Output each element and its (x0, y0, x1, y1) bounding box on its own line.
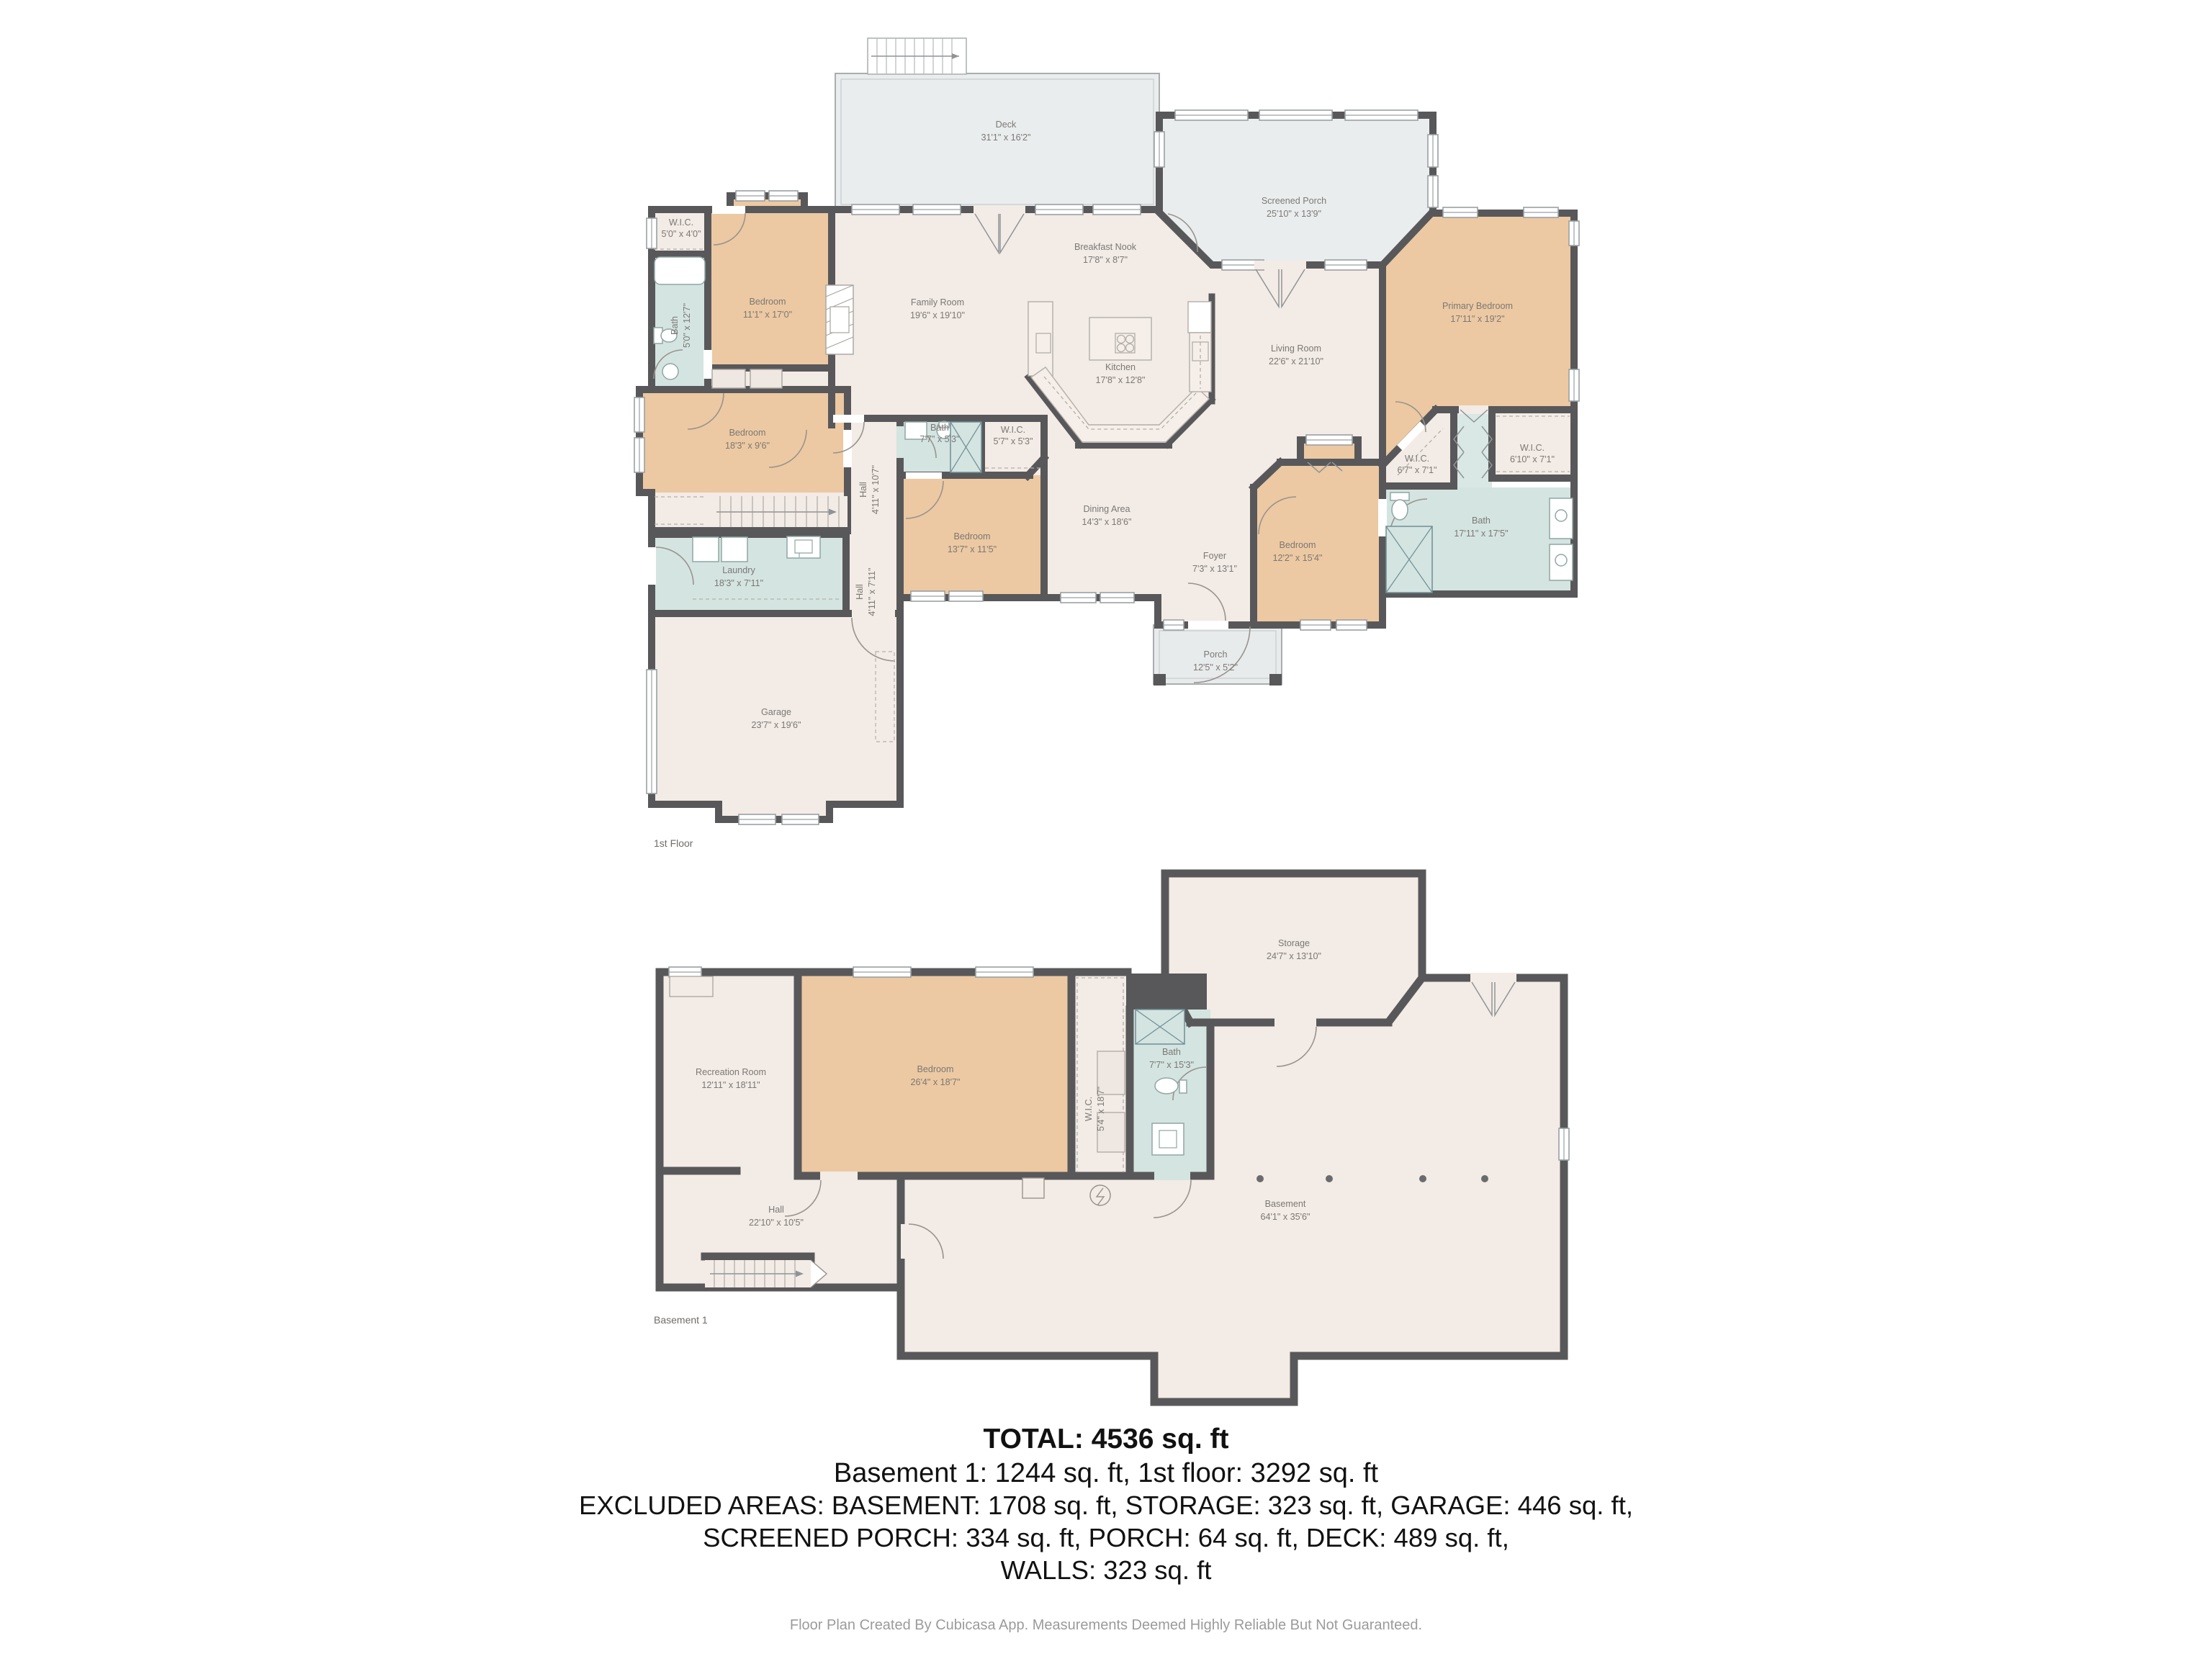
svg-text:25'10" x 13'9": 25'10" x 13'9" (1267, 209, 1321, 219)
svg-text:Kitchen: Kitchen (1105, 362, 1136, 372)
svg-text:Primary Bedroom: Primary Bedroom (1442, 301, 1513, 311)
svg-text:22'6" x 21'10": 22'6" x 21'10" (1269, 356, 1323, 367)
svg-text:Foyer: Foyer (1203, 551, 1226, 561)
svg-text:17'11" x 19'2": 17'11" x 19'2" (1450, 314, 1504, 324)
svg-text:Hall: Hall (858, 482, 868, 498)
svg-text:7'7" x 5'3": 7'7" x 5'3" (920, 434, 959, 444)
svg-text:EXCLUDED AREAS: BASEMENT: 1708: EXCLUDED AREAS: BASEMENT: 1708 sq. ft, S… (579, 1491, 1633, 1520)
svg-text:5'0" x 12'7": 5'0" x 12'7" (682, 303, 692, 348)
svg-text:Bedroom: Bedroom (729, 428, 765, 438)
svg-text:12'5" x 5'2": 12'5" x 5'2" (1193, 662, 1238, 673)
svg-text:5'0" x 4'0": 5'0" x 4'0" (661, 229, 701, 239)
svg-text:12'2" x 15'4": 12'2" x 15'4" (1272, 553, 1322, 563)
svg-text:Bedroom: Bedroom (953, 531, 990, 541)
svg-text:5'7" x 5'3": 5'7" x 5'3" (993, 436, 1033, 446)
svg-text:WALLS: 323 sq. ft: WALLS: 323 sq. ft (1001, 1555, 1212, 1585)
svg-text:Dining Area: Dining Area (1083, 504, 1130, 514)
svg-text:6'10" x 7'1": 6'10" x 7'1" (1510, 454, 1555, 464)
svg-text:TOTAL: 4536 sq. ft: TOTAL: 4536 sq. ft (984, 1424, 1229, 1455)
svg-text:Basement 1: 1244 sq. ft, 1st f: Basement 1: 1244 sq. ft, 1st floor: 3292… (834, 1458, 1379, 1488)
svg-text:17'8" x 8'7": 17'8" x 8'7" (1083, 255, 1128, 265)
svg-text:Hall: Hall (768, 1205, 784, 1215)
svg-text:Bath: Bath (1162, 1047, 1181, 1057)
svg-text:Living Room: Living Room (1271, 343, 1321, 354)
svg-text:19'6" x 19'10": 19'6" x 19'10" (910, 310, 965, 320)
svg-text:64'1" x 35'6": 64'1" x 35'6" (1260, 1212, 1310, 1222)
svg-text:Bedroom: Bedroom (749, 297, 786, 307)
svg-text:W.I.C.: W.I.C. (669, 217, 693, 228)
svg-text:4'11" x 10'7": 4'11" x 10'7" (871, 465, 881, 514)
svg-text:13'7" x 11'5": 13'7" x 11'5" (948, 544, 997, 554)
svg-text:Screened Porch: Screened Porch (1262, 196, 1326, 206)
svg-text:14'3" x 18'6": 14'3" x 18'6" (1082, 517, 1131, 527)
svg-text:Hall: Hall (855, 584, 865, 600)
svg-text:Breakfast Nook: Breakfast Nook (1074, 242, 1137, 252)
svg-text:Basement 1: Basement 1 (654, 1314, 708, 1326)
svg-text:W.I.C.: W.I.C. (1084, 1097, 1094, 1121)
svg-text:18'3" x 9'6": 18'3" x 9'6" (725, 441, 770, 451)
svg-text:W.I.C.: W.I.C. (1405, 454, 1429, 464)
svg-text:24'7" x 13'10": 24'7" x 13'10" (1267, 951, 1321, 961)
svg-text:Laundry: Laundry (722, 565, 755, 575)
svg-text:6'7" x 7'1": 6'7" x 7'1" (1397, 465, 1437, 475)
svg-text:Recreation Room: Recreation Room (696, 1067, 766, 1077)
svg-text:SCREENED PORCH: 334 sq. ft, PO: SCREENED PORCH: 334 sq. ft, PORCH: 64 sq… (703, 1523, 1509, 1552)
svg-text:Floor Plan Created By Cubicasa: Floor Plan Created By Cubicasa App. Meas… (790, 1617, 1422, 1633)
svg-text:Bath: Bath (1472, 516, 1491, 526)
svg-text:5'4" x 18'7": 5'4" x 18'7" (1096, 1087, 1106, 1131)
svg-text:26'4" x 18'7": 26'4" x 18'7" (910, 1077, 960, 1087)
svg-text:17'11" x 17'5": 17'11" x 17'5" (1454, 529, 1508, 539)
svg-text:Deck: Deck (996, 120, 1017, 130)
svg-text:W.I.C.: W.I.C. (1520, 443, 1545, 453)
svg-text:Porch: Porch (1204, 649, 1228, 660)
svg-text:4'11" x 7'11": 4'11" x 7'11" (867, 567, 877, 616)
svg-text:7'7" x 15'3": 7'7" x 15'3" (1149, 1060, 1194, 1070)
svg-text:Bath: Bath (930, 423, 949, 433)
svg-text:Family Room: Family Room (911, 297, 964, 307)
svg-text:Bedroom: Bedroom (917, 1064, 953, 1074)
svg-text:Storage: Storage (1278, 938, 1310, 948)
svg-text:12'11" x 18'11": 12'11" x 18'11" (701, 1080, 760, 1090)
svg-text:Bedroom: Bedroom (1279, 540, 1316, 550)
svg-text:18'3" x 7'11": 18'3" x 7'11" (714, 578, 763, 588)
svg-text:Basement: Basement (1265, 1199, 1306, 1209)
svg-text:Bath: Bath (670, 316, 680, 335)
svg-text:31'1" x 16'2": 31'1" x 16'2" (981, 132, 1030, 143)
svg-text:Garage: Garage (761, 707, 791, 717)
svg-text:11'1" x 17'0": 11'1" x 17'0" (743, 310, 792, 320)
svg-text:1st Floor: 1st Floor (654, 837, 693, 849)
svg-text:W.I.C.: W.I.C. (1001, 425, 1025, 435)
svg-text:17'8" x 12'8": 17'8" x 12'8" (1095, 375, 1145, 385)
svg-text:23'7" x 19'6": 23'7" x 19'6" (751, 720, 801, 730)
svg-text:7'3" x 13'1": 7'3" x 13'1" (1192, 564, 1237, 574)
svg-text:22'10" x 10'5": 22'10" x 10'5" (749, 1218, 804, 1228)
